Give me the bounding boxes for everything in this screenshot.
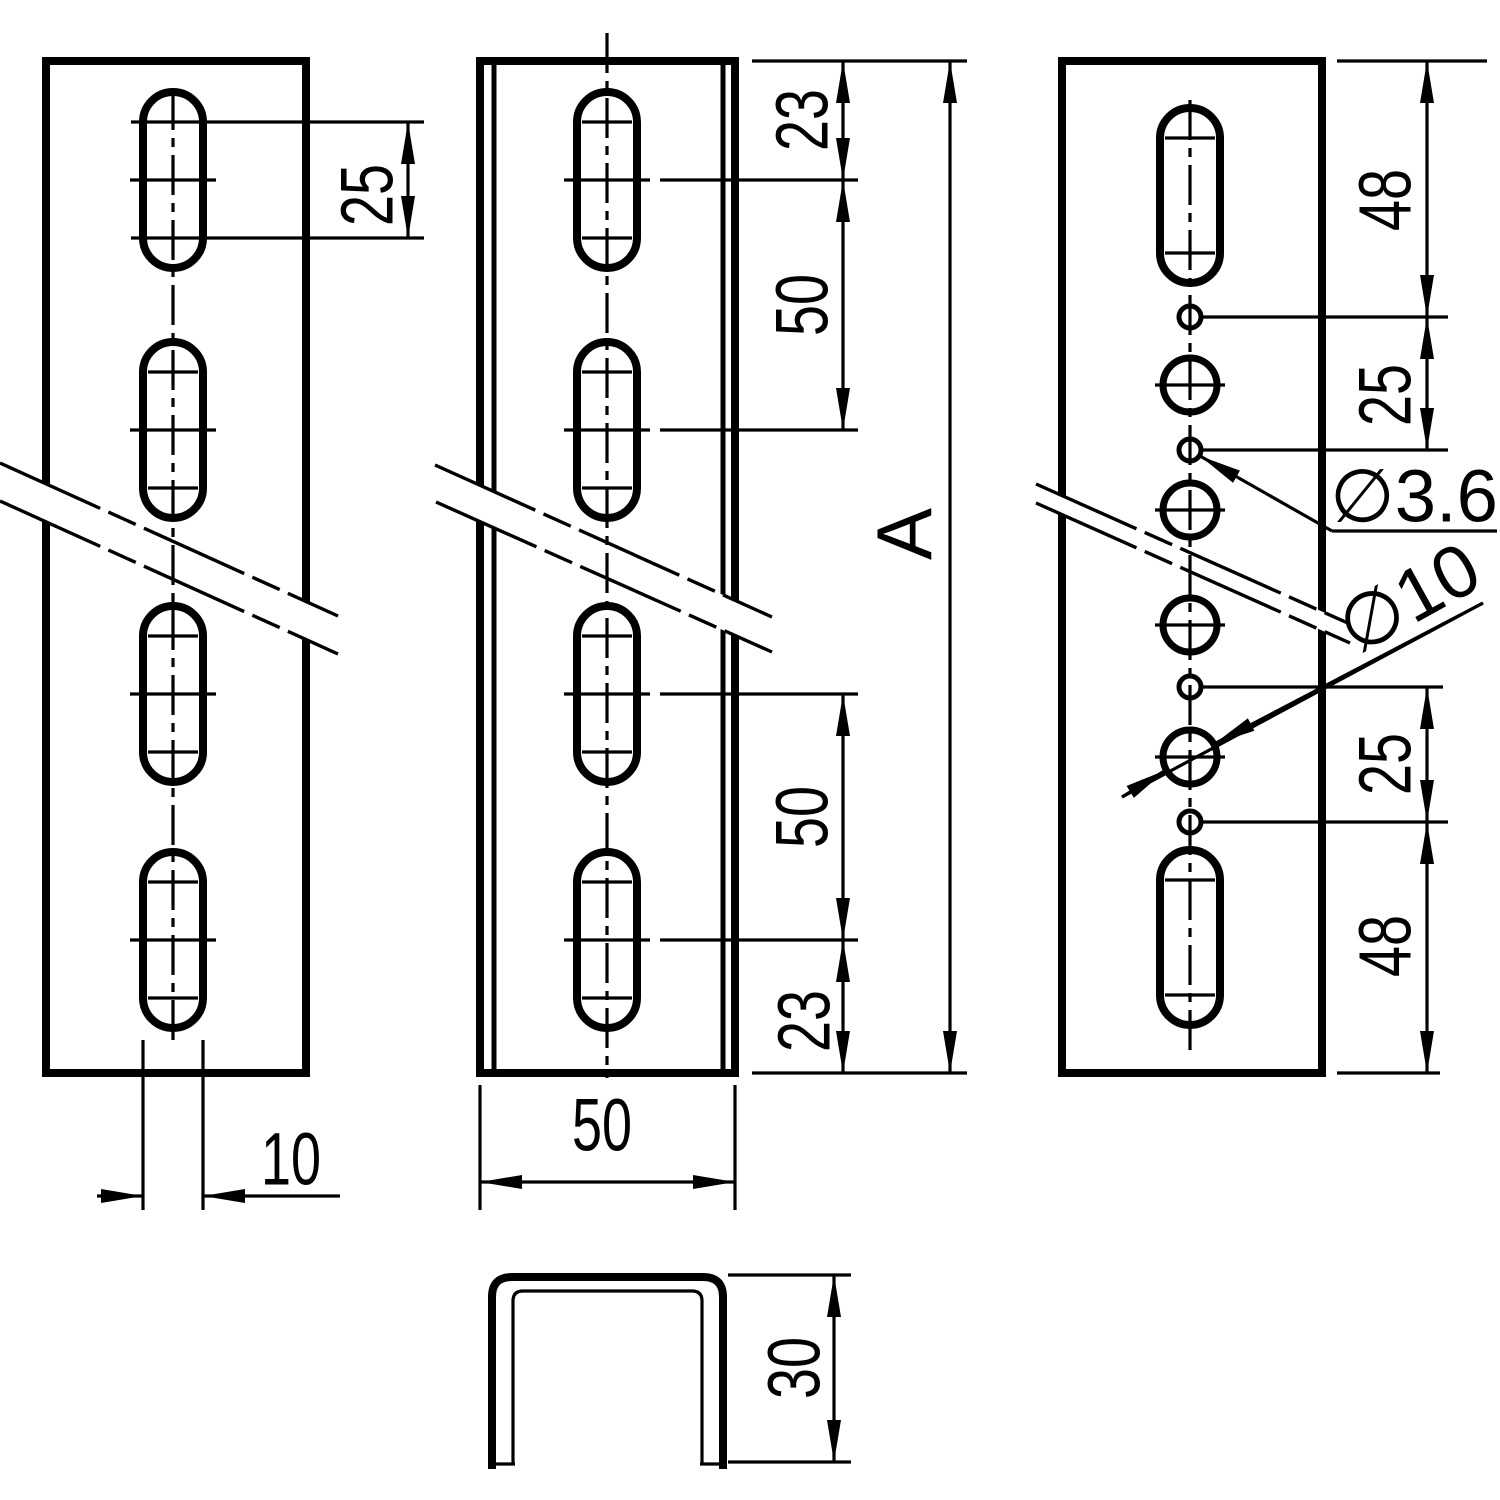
dim-label-width: 50 (572, 1083, 632, 1166)
dim-label-upper-pitch: 50 (761, 274, 844, 336)
dim-label-small-hole-dia: ∅3.6 (1330, 455, 1498, 538)
dim-label-bottom-end-distance: 48 (1344, 915, 1427, 977)
dim-label-overall-length: A (860, 508, 948, 560)
dim-label-lower-pitch: 50 (761, 786, 844, 848)
technical-drawing: 25 10 23 50 50 23 A 50 30 (0, 0, 1500, 1500)
dim-label-bottom-offset: 23 (763, 990, 846, 1052)
dim-label-slot-width: 10 (261, 1118, 321, 1201)
dim-label-profile-height: 30 (753, 1337, 836, 1399)
dim-label-lower-pitch: 25 (1344, 733, 1427, 795)
drawing-canvas: 25 10 23 50 50 23 A 50 30 (0, 0, 1500, 1500)
dim-label-upper-pitch: 25 (1344, 364, 1427, 426)
dim-label-slot-length: 25 (326, 164, 409, 226)
dim-label-top-end-distance: 48 (1344, 169, 1427, 231)
dim-label-top-offset: 23 (761, 89, 844, 151)
